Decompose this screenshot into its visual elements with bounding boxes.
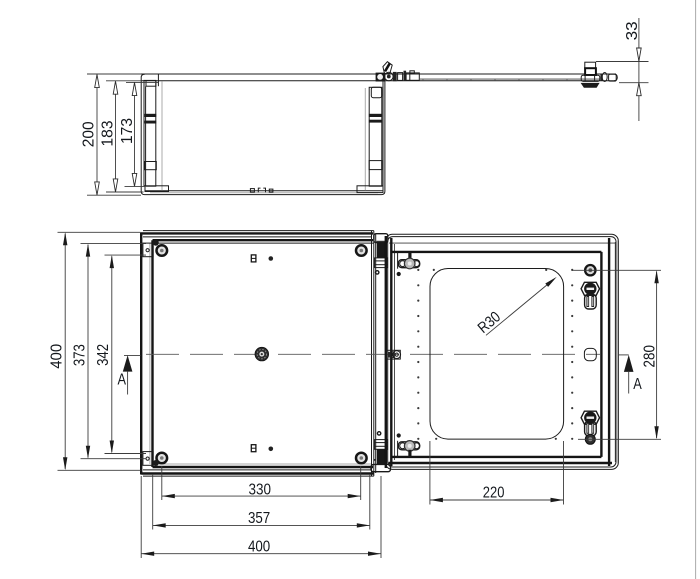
svg-text:200: 200 [80,121,97,147]
svg-text:183: 183 [99,121,116,147]
svg-text:373: 373 [72,344,89,366]
svg-text:220: 220 [483,484,505,501]
svg-text:173: 173 [119,118,136,144]
svg-text:A: A [633,376,642,393]
svg-text:357: 357 [248,510,270,527]
svg-text:342: 342 [95,344,112,366]
svg-text:A: A [117,371,126,388]
svg-text:33: 33 [624,21,641,40]
svg-text:400: 400 [248,538,270,555]
svg-text:400: 400 [48,344,65,369]
svg-text:330: 330 [249,481,272,498]
svg-text:280: 280 [642,345,659,367]
